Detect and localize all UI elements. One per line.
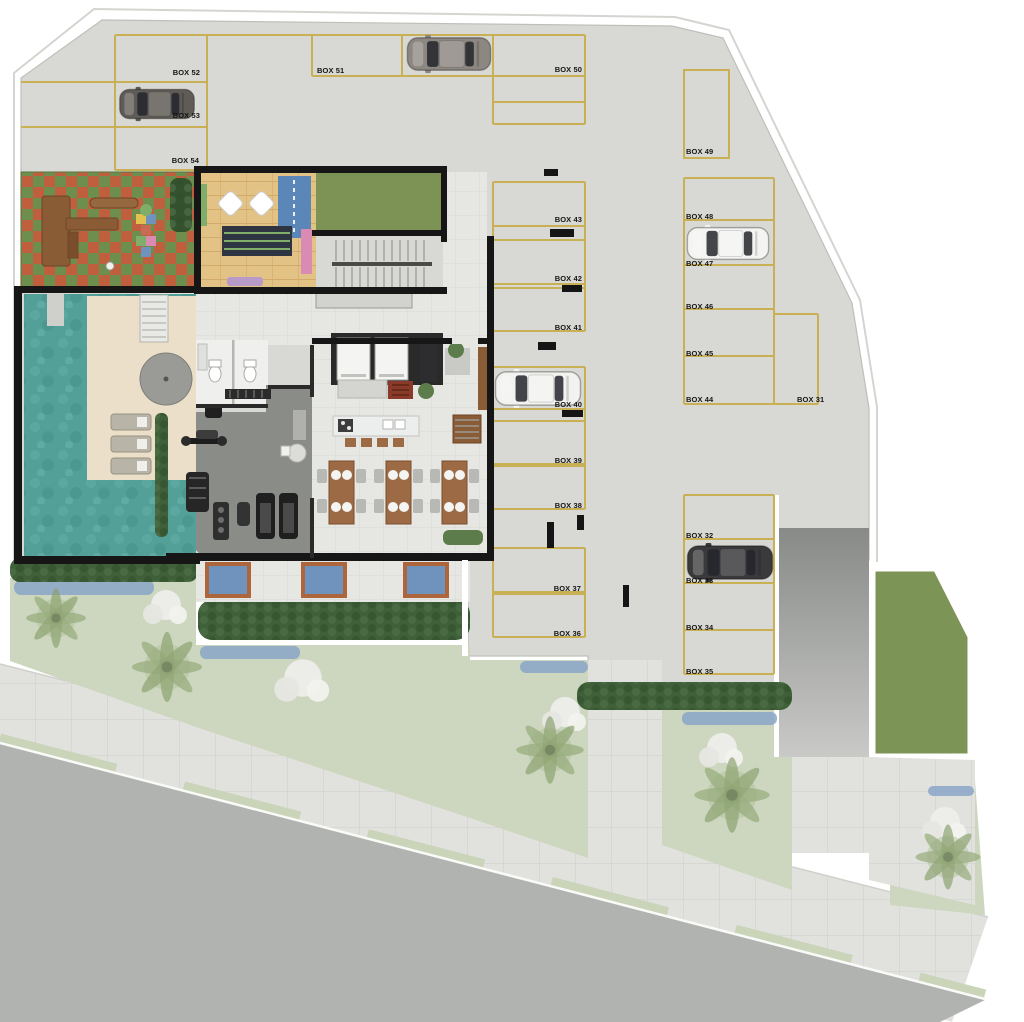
parking-box-label-50: BOX 50 <box>552 66 582 74</box>
kitchen-counter <box>338 380 387 398</box>
parking-box-label-53: BOX 53 <box>170 112 200 120</box>
parking-box-label-31: BOX 31 <box>797 396 824 404</box>
plant-icon <box>418 383 434 399</box>
playground <box>21 172 202 292</box>
parking-box-label-33: BOX 33 <box>686 577 713 585</box>
barbell-rack <box>225 389 271 399</box>
site-plan: BOX 52 BOX 53 BOX 54 BOX 51 BOX 50 BOX 4… <box>0 0 1024 1022</box>
parking-box-label-49: BOX 49 <box>686 148 713 156</box>
service-cabinet <box>420 340 437 382</box>
pool-area <box>24 294 196 556</box>
planter-box <box>443 530 483 545</box>
parking-box-label-51: BOX 51 <box>317 67 344 75</box>
plant-icon <box>448 342 464 358</box>
planters <box>205 562 449 598</box>
stool <box>345 438 356 447</box>
multi-gym <box>186 472 209 512</box>
entrance-canopy <box>316 292 412 308</box>
car-box-47 <box>687 225 768 262</box>
exercise-ball <box>288 444 306 462</box>
parking-box-label-48: BOX 48 <box>686 213 713 221</box>
spin-bike <box>237 502 250 526</box>
sideboard <box>478 347 487 410</box>
parking-box-label-34: BOX 34 <box>686 624 713 632</box>
entry-steps <box>140 295 168 342</box>
kids-bench <box>227 277 263 286</box>
treadmill <box>279 493 298 539</box>
site-plan-graphic <box>0 0 1024 1022</box>
stool <box>377 438 388 447</box>
parking-box-label-37: BOX 37 <box>551 585 581 593</box>
parking-box-label-35: BOX 35 <box>686 668 713 676</box>
parking-box-label-44: BOX 44 <box>686 396 713 404</box>
parking-box-label-40: BOX 40 <box>552 401 582 409</box>
parking-box-label-39: BOX 39 <box>552 457 582 465</box>
kids-shelf <box>301 229 312 274</box>
roof-grass-strip <box>316 172 441 232</box>
parking-box-label-41: BOX 41 <box>552 324 582 332</box>
stool <box>361 438 372 447</box>
parking-box-label-46: BOX 46 <box>686 303 713 311</box>
parking-box-label-45: BOX 45 <box>686 350 713 358</box>
car-ramp <box>774 495 869 757</box>
parking-box-label-52: BOX 52 <box>170 69 200 77</box>
play-ball <box>106 262 114 270</box>
lot-line <box>462 560 468 656</box>
parking-box-label-42: BOX 42 <box>552 275 582 283</box>
parking-box-label-54: BOX 54 <box>169 157 199 165</box>
grass-yard <box>874 570 969 755</box>
parking-box-label-32: BOX 32 <box>686 532 713 540</box>
stool <box>393 438 404 447</box>
foosball-table <box>453 415 481 443</box>
sink-counter <box>198 344 207 370</box>
side-table <box>281 446 290 456</box>
parking-box-label-38: BOX 38 <box>552 502 582 510</box>
car-top-row <box>407 35 490 73</box>
ramp-walkway <box>792 757 869 853</box>
dining-tables <box>317 461 479 524</box>
parking-box-label-36: BOX 36 <box>551 630 581 638</box>
pool-pad <box>47 294 64 326</box>
parking-box-label-43: BOX 43 <box>552 216 582 224</box>
treadmill <box>256 493 275 539</box>
sun-loungers <box>111 414 151 474</box>
gym-cabinet <box>293 410 306 440</box>
parking-box-label-47: BOX 47 <box>686 260 713 268</box>
